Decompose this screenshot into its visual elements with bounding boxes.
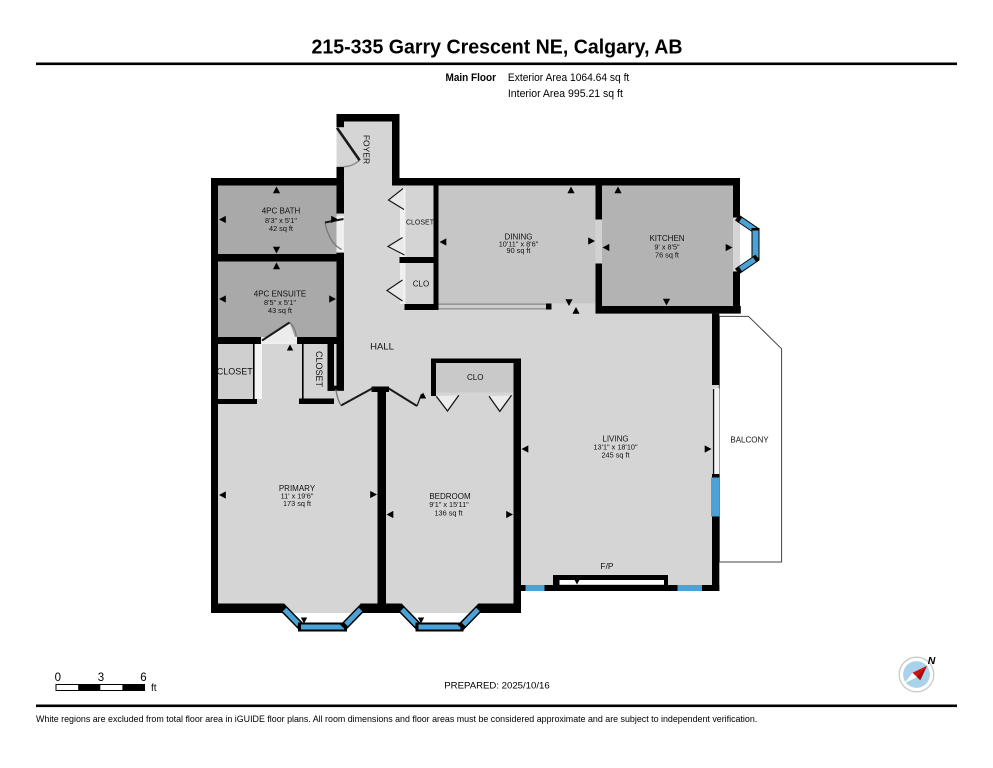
svg-text:CLOSET: CLOSET (314, 351, 324, 388)
svg-text:CLO: CLO (413, 280, 429, 289)
svg-text:173 sq ft: 173 sq ft (283, 499, 311, 508)
svg-text:136 sq ft: 136 sq ft (435, 509, 463, 518)
svg-text:Interior Area 995.21 sq ft: Interior Area 995.21 sq ft (508, 88, 623, 100)
svg-text:BALCONY: BALCONY (730, 435, 769, 444)
svg-text:90 sq ft: 90 sq ft (507, 246, 531, 255)
svg-text:0: 0 (55, 672, 61, 684)
svg-text:PREPARED: 2025/10/16: PREPARED: 2025/10/16 (444, 681, 549, 692)
svg-text:White regions are excluded fro: White regions are excluded from total fl… (36, 714, 757, 724)
svg-text:N: N (928, 655, 936, 667)
svg-text:Exterior Area 1064.64 sq ft: Exterior Area 1064.64 sq ft (508, 72, 629, 84)
svg-text:CLOSET: CLOSET (406, 220, 435, 227)
svg-text:43 sq ft: 43 sq ft (268, 306, 292, 315)
svg-text:F/P: F/P (600, 561, 614, 571)
svg-text:4PC BATH: 4PC BATH (262, 207, 301, 216)
svg-text:HALL: HALL (370, 342, 394, 353)
svg-text:FOYER: FOYER (362, 135, 372, 164)
svg-text:ft: ft (151, 683, 157, 694)
svg-text:Main Floor: Main Floor (446, 72, 497, 84)
svg-text:245 sq ft: 245 sq ft (602, 451, 630, 460)
svg-text:6: 6 (140, 672, 146, 684)
svg-text:CLO: CLO (467, 373, 483, 382)
svg-text:42 sq ft: 42 sq ft (269, 224, 293, 233)
svg-text:76 sq ft: 76 sq ft (655, 251, 679, 260)
svg-text:215-335 Garry Crescent NE, Cal: 215-335 Garry Crescent NE, Calgary, AB (312, 37, 683, 59)
svg-text:CLOSET: CLOSET (217, 367, 254, 377)
svg-text:3: 3 (98, 672, 104, 684)
